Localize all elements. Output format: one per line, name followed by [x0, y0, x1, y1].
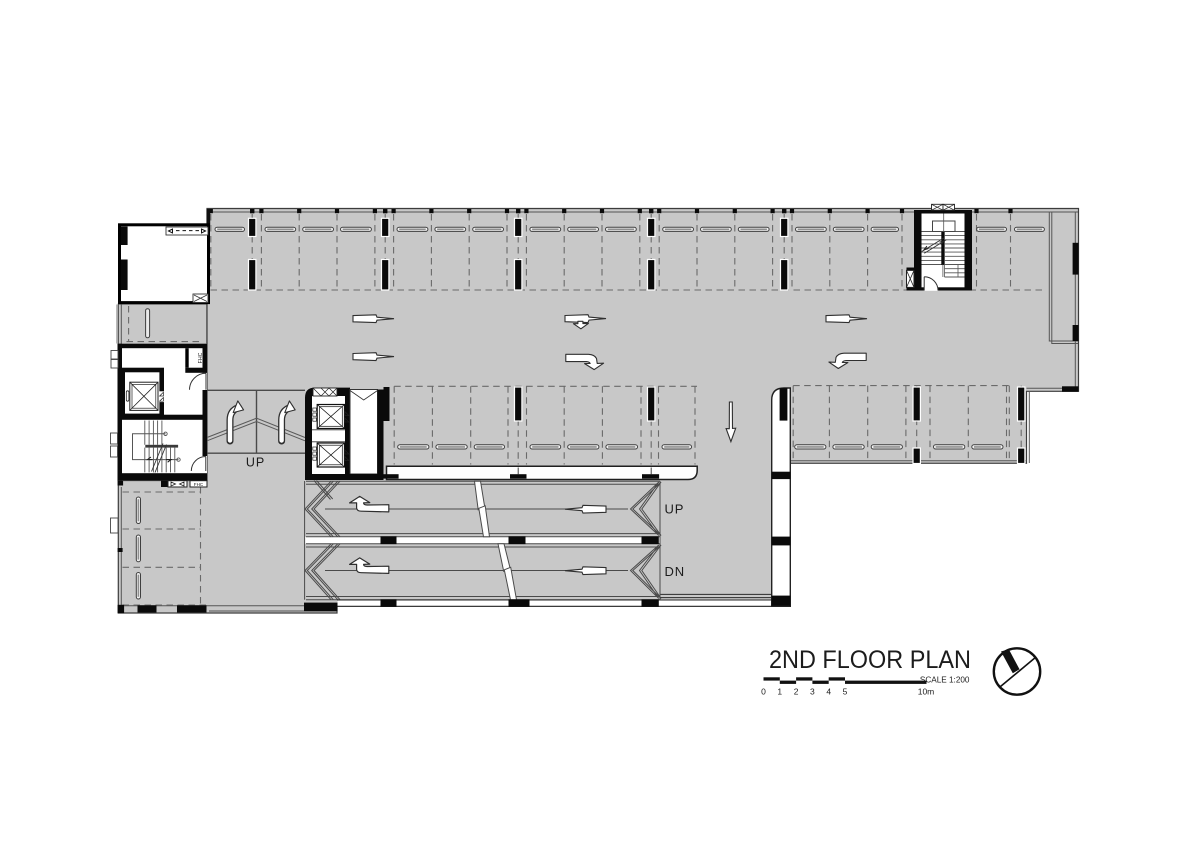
- svg-text:DN: DN: [665, 564, 685, 579]
- svg-text:10m: 10m: [918, 687, 935, 697]
- svg-text:FHC: FHC: [198, 352, 204, 363]
- svg-text:UP: UP: [246, 456, 265, 470]
- svg-text:FHC: FHC: [194, 482, 204, 487]
- svg-text:4: 4: [826, 687, 831, 697]
- svg-text:2ND FLOOR PLAN: 2ND FLOOR PLAN: [769, 646, 971, 674]
- svg-text:UP: UP: [665, 502, 685, 517]
- svg-text:3: 3: [810, 687, 815, 697]
- svg-text:5: 5: [843, 687, 848, 697]
- svg-text:1: 1: [777, 687, 782, 697]
- svg-text:0: 0: [761, 687, 766, 697]
- svg-text:SCALE 1:200: SCALE 1:200: [920, 676, 970, 685]
- svg-text:2: 2: [794, 687, 799, 697]
